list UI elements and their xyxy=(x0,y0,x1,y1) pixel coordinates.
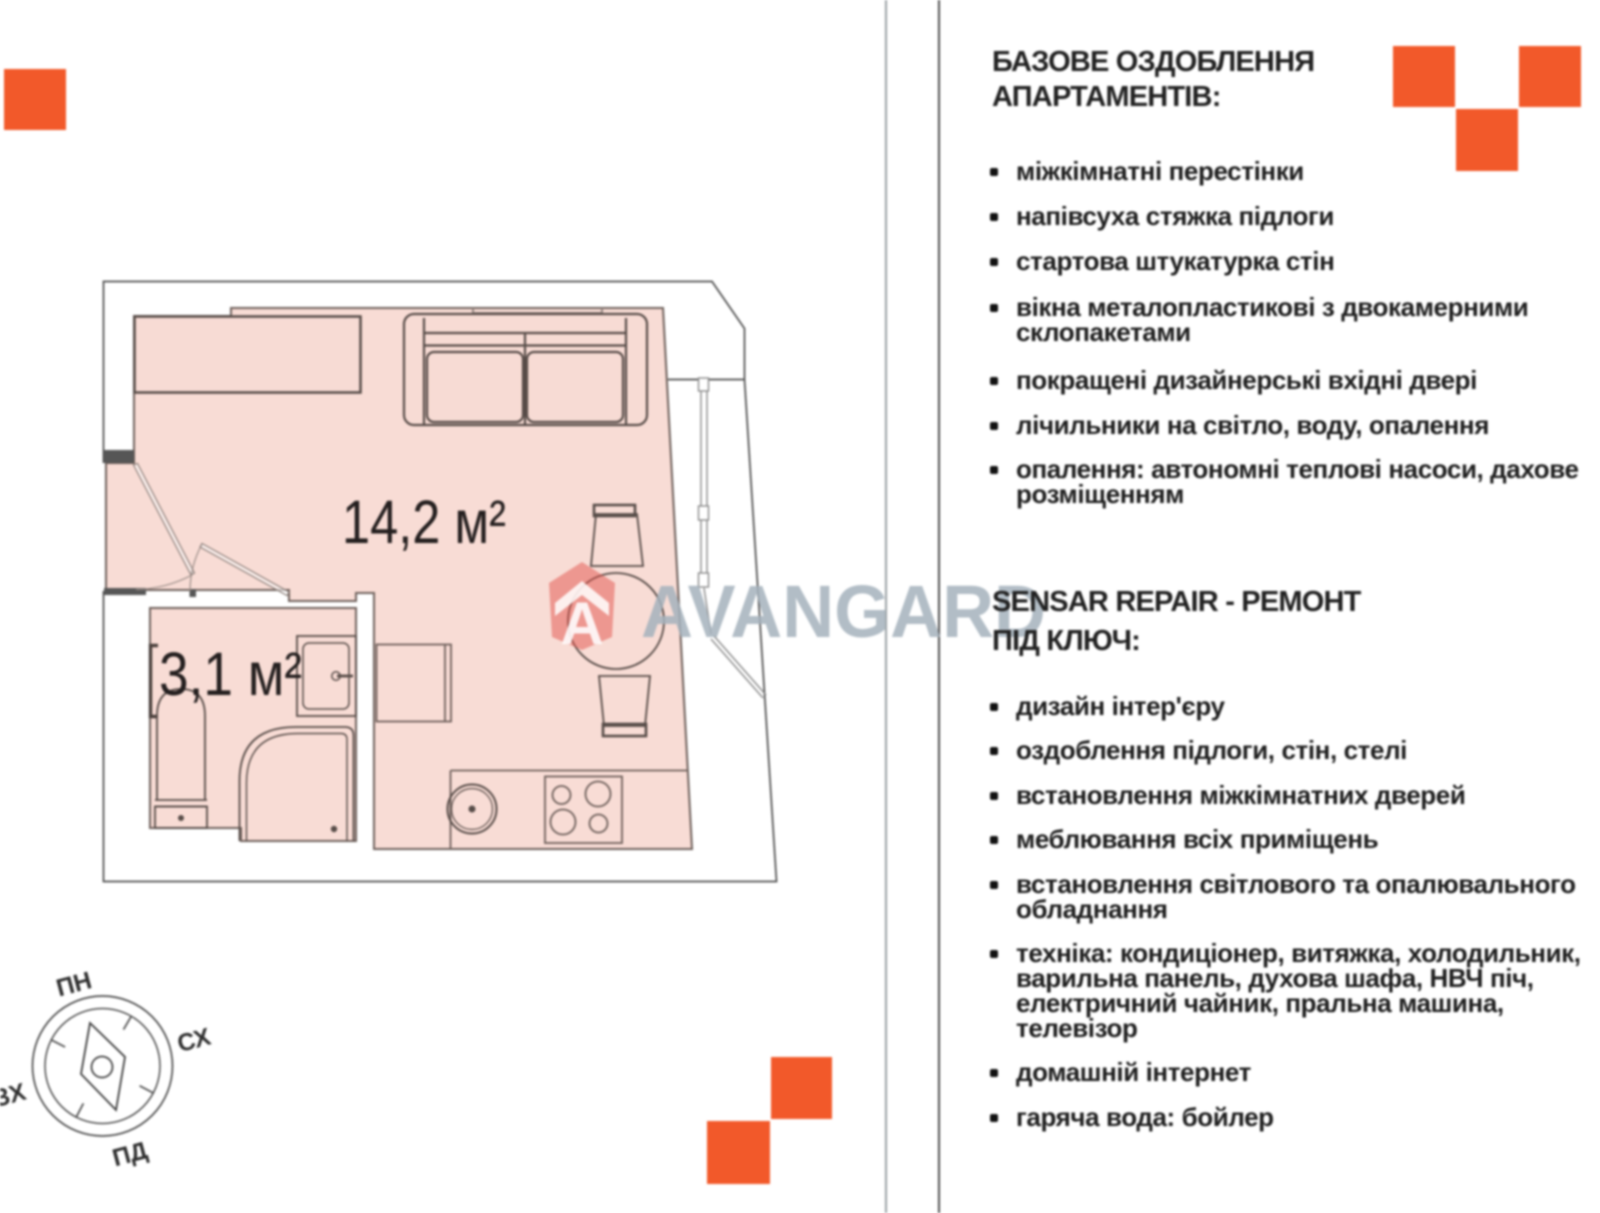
svg-text:СХ: СХ xyxy=(175,1023,215,1058)
svg-text:AVANGARD: AVANGARD xyxy=(641,570,1046,653)
svg-text:14,2 м²: 14,2 м² xyxy=(342,488,506,556)
svg-text:ЗХ: ЗХ xyxy=(0,1078,29,1112)
svg-text:3,1 м²: 3,1 м² xyxy=(159,640,302,708)
svg-text:ПД: ПД xyxy=(110,1137,151,1172)
svg-text:A: A xyxy=(560,590,603,657)
